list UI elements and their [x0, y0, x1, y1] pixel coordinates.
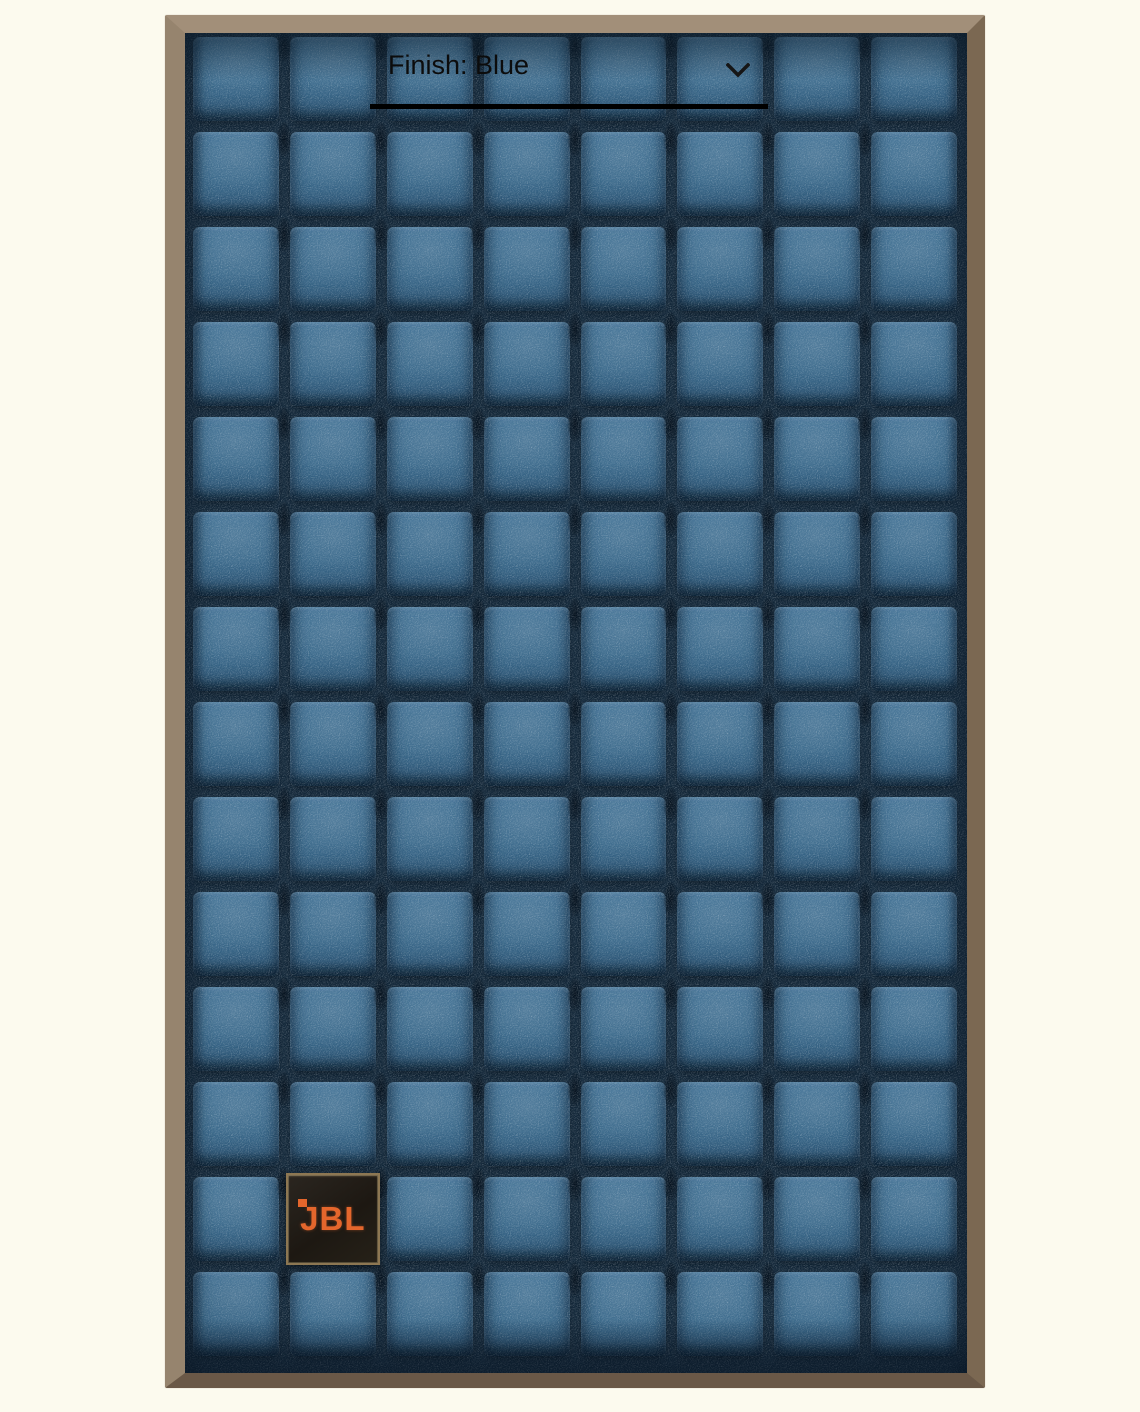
- grille-cell: [484, 892, 570, 976]
- grille-cell: [484, 1272, 570, 1356]
- chevron-down-icon: [726, 63, 750, 78]
- grille-cell: [484, 417, 570, 501]
- grille-cell: [677, 1082, 763, 1166]
- grille-cell: [581, 607, 667, 691]
- grille-cell: [290, 892, 376, 976]
- grille-cell: [774, 702, 860, 786]
- grille-cell: [387, 892, 473, 976]
- grille-cell: [290, 1082, 376, 1166]
- grille-cell: [871, 1177, 957, 1261]
- grille-cell: [581, 797, 667, 881]
- brand-badge: JBL: [286, 1173, 380, 1265]
- grille-cell: [581, 892, 667, 976]
- grille-cell: [193, 227, 279, 311]
- grille-cell: [581, 322, 667, 406]
- grille-cell: [774, 987, 860, 1071]
- grille-cell: [677, 987, 763, 1071]
- grille-cell: [677, 132, 763, 216]
- grille-cell: [387, 1082, 473, 1166]
- grille-cell: [677, 227, 763, 311]
- grille-cell: [774, 227, 860, 311]
- grille-cell: [871, 227, 957, 311]
- grille-cell: JBL: [290, 1177, 376, 1261]
- grille-cell: [290, 607, 376, 691]
- grille-cell: [677, 702, 763, 786]
- grille-cell: [193, 132, 279, 216]
- grille-cell: [484, 322, 570, 406]
- grille-cell: [387, 1272, 473, 1356]
- grille-cell: [581, 1177, 667, 1261]
- grille-cell: [871, 37, 957, 121]
- grille-cell: [774, 512, 860, 596]
- grille-cell: [677, 512, 763, 596]
- grille-cell: [581, 512, 667, 596]
- grille-cell: [871, 797, 957, 881]
- grille-cell: [290, 702, 376, 786]
- grille-cell: [387, 227, 473, 311]
- grille-cell: [871, 322, 957, 406]
- grille-cell: [774, 322, 860, 406]
- grille-cell: [484, 1082, 570, 1166]
- grille-cell: [677, 1272, 763, 1356]
- grille-cell: [387, 987, 473, 1071]
- grille-cell: [871, 1082, 957, 1166]
- grille-cell: [387, 1177, 473, 1261]
- grille-cell: [290, 37, 376, 121]
- jbl-logo: JBL: [300, 1200, 365, 1238]
- grille-cell: [774, 1082, 860, 1166]
- grille-cell: [387, 702, 473, 786]
- grille-cell: [581, 702, 667, 786]
- grille-cell: [484, 702, 570, 786]
- grille-cell: [484, 227, 570, 311]
- grille-cell: [387, 607, 473, 691]
- grille-cell: [290, 512, 376, 596]
- grille-cell: [774, 607, 860, 691]
- grille-cell: [290, 987, 376, 1071]
- grille-cell: [193, 322, 279, 406]
- grille-cell: [581, 987, 667, 1071]
- grille-cell: [387, 512, 473, 596]
- grille-cell: [387, 132, 473, 216]
- grille-cell: [677, 797, 763, 881]
- grille-cell: [581, 227, 667, 311]
- grille-cell: [193, 417, 279, 501]
- grille-grid: JBL: [193, 37, 957, 1356]
- grille-cell: [871, 512, 957, 596]
- grille-cell: [387, 417, 473, 501]
- grille-cell: [193, 1177, 279, 1261]
- grille-cell: [871, 702, 957, 786]
- grille-cell: [774, 132, 860, 216]
- speaker-grille: JBL: [185, 33, 967, 1373]
- speaker-product-image: JBL: [165, 15, 985, 1388]
- grille-cell: [581, 417, 667, 501]
- grille-cell: [193, 987, 279, 1071]
- grille-cell: [484, 987, 570, 1071]
- grille-cell: [581, 132, 667, 216]
- grille-cell: [193, 892, 279, 976]
- grille-cell: [677, 1177, 763, 1261]
- grille-cell: [871, 607, 957, 691]
- grille-cell: [774, 797, 860, 881]
- grille-cell: [581, 1272, 667, 1356]
- grille-cell: [484, 512, 570, 596]
- grille-cell: [193, 607, 279, 691]
- grille-cell: [193, 37, 279, 121]
- grille-cell: [871, 892, 957, 976]
- grille-cell: [677, 892, 763, 976]
- grille-cell: [290, 132, 376, 216]
- grille-cell: [774, 892, 860, 976]
- grille-cell: [871, 1272, 957, 1356]
- grille-cell: [193, 512, 279, 596]
- grille-cell: [871, 987, 957, 1071]
- finish-select-label: Finish: Blue: [388, 48, 529, 82]
- grille-cell: [677, 417, 763, 501]
- grille-cell: [677, 607, 763, 691]
- grille-cell: [581, 1082, 667, 1166]
- grille-cell: [193, 1272, 279, 1356]
- grille-cell: [193, 797, 279, 881]
- grille-cell: [774, 1272, 860, 1356]
- grille-cell: [774, 37, 860, 121]
- grille-cell: [871, 132, 957, 216]
- grille-cell: [387, 322, 473, 406]
- grille-cell: [290, 1272, 376, 1356]
- grille-cell: [774, 417, 860, 501]
- grille-cell: [484, 797, 570, 881]
- grille-cell: [871, 417, 957, 501]
- grille-cell: [387, 797, 473, 881]
- grille-cell: [677, 322, 763, 406]
- grille-cell: [290, 417, 376, 501]
- grille-cell: [484, 132, 570, 216]
- grille-cell: [774, 1177, 860, 1261]
- grille-cell: [484, 607, 570, 691]
- grille-cell: [193, 702, 279, 786]
- product-gallery: JBL Finish: Blue: [0, 0, 1140, 1412]
- finish-select[interactable]: Finish: Blue: [370, 38, 768, 109]
- grille-cell: [290, 227, 376, 311]
- grille-cell: [290, 797, 376, 881]
- grille-cell: [484, 1177, 570, 1261]
- grille-cell: [193, 1082, 279, 1166]
- grille-cell: [290, 322, 376, 406]
